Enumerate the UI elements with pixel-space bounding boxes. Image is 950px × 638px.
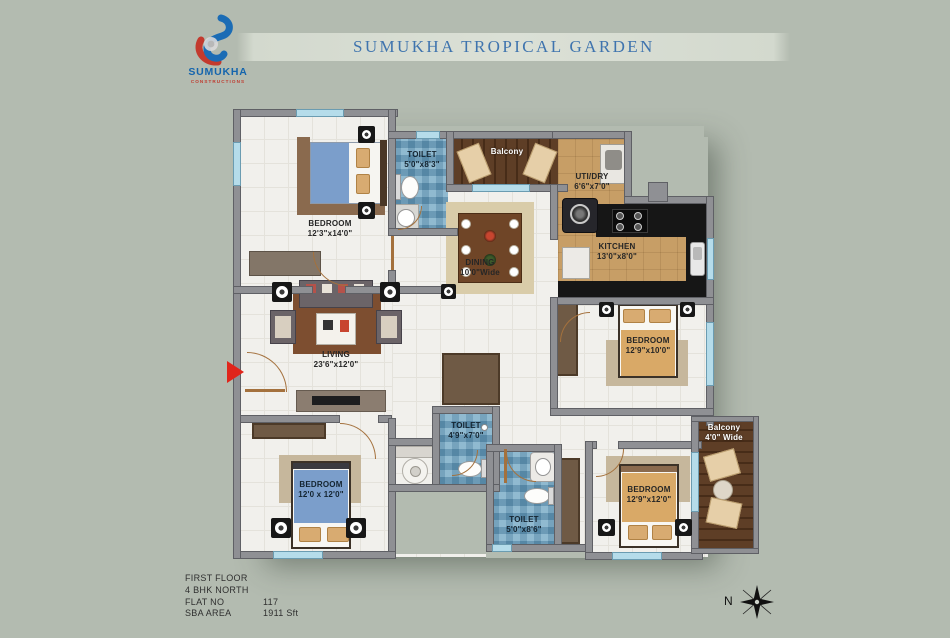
wall [550,297,558,415]
column [358,126,375,143]
column [441,284,456,299]
room-label-bedroom-top-left: BEDROOM12'3"x14'0" [284,219,376,240]
tv [312,396,360,405]
cabinet [442,353,500,405]
room-label-living: LIVING23'6"x12'0" [303,350,369,371]
pillow [299,527,321,542]
room-label-balcony-right: Balcony4'0" Wide [695,423,753,444]
pillow [623,309,645,323]
basin-drain [410,466,421,477]
column [272,282,292,302]
room-label-bedroom-bottom-left: BEDROOM12'0 x 12'0" [289,480,353,501]
wall [486,444,562,452]
burner [616,223,624,231]
pillow [356,174,370,194]
window [706,322,714,386]
info-row: FLAT NO117 [185,597,298,609]
duct [648,182,668,202]
column [358,202,375,219]
title-banner: SUMUKHA TROPICAL GARDEN [237,33,790,61]
pillow [628,525,648,540]
bed-headboard [380,140,387,206]
burner [616,212,624,220]
pillow [649,309,671,323]
window [416,131,440,139]
vanity-counter [392,446,436,458]
window [691,452,699,512]
wall [691,548,759,554]
sumukha-logo-icon [188,13,240,67]
washer-drum [570,204,590,224]
window [273,551,323,559]
column [680,302,695,317]
room-label-toilet-bottom: TOILET5'0"x8'6" [495,515,553,536]
room-label-dining: DINING10'0"Wide [447,258,513,279]
wall [753,416,759,554]
floor-plan-page: SUMUKHA TROPICAL GARDEN SUMUKHA CONSTRUC… [0,0,950,638]
wall [691,416,759,422]
wc [524,488,550,504]
coffee-table-decor [323,320,333,330]
logo-sub-text: CONSTRUCTIONS [180,79,256,84]
wall [618,441,702,449]
column [598,519,615,536]
wardrobe [560,458,580,544]
wall [432,406,440,488]
wall [550,408,714,416]
centerpiece [484,230,496,242]
entrance-arrow-icon [227,361,244,383]
sink-basin [605,150,622,170]
window [296,109,344,117]
plate [461,219,471,229]
wall [432,406,500,414]
page-title: SUMUKHA TROPICAL GARDEN [237,37,655,57]
wall [388,131,564,139]
wardrobe [249,251,321,276]
info-row: SBA AREA1911 Sft [185,608,298,620]
wall [585,441,593,559]
column [599,302,614,317]
room-label-toilet-middle: TOILET4'9"x7'0" [438,421,494,442]
wall [240,415,340,423]
room-label-utility: UTI/DRY6'6"x7'0" [560,172,624,193]
wall [552,131,632,139]
info-row: FIRST FLOOR [185,573,298,585]
room-label-bedroom-right: BEDROOM12'9"x10'0" [618,336,678,357]
exterior-patch [396,492,486,554]
wall [624,131,632,204]
plate [509,245,519,255]
wall [388,109,396,236]
exterior-patch [632,137,708,197]
window [233,142,241,186]
door-leaf [391,236,394,270]
coffee-table-decor [340,320,349,332]
column [380,282,400,302]
info-row: 4 BHK NORTH [185,585,298,597]
wall [550,184,558,240]
column [675,519,692,536]
compass-north-label: N [724,594,733,608]
column [271,518,291,538]
exterior-patch [486,552,586,558]
room-label-toilet-top: TOILET5'0"x8'3" [396,150,448,171]
wall [624,196,714,204]
plate [461,245,471,255]
sink-basin [693,247,702,260]
armchair-cushion [275,316,291,338]
balcony-table [713,480,733,500]
column [346,518,366,538]
window [707,238,714,280]
wall [388,484,500,492]
pillow [652,525,672,540]
bed-headboard [293,463,349,469]
wc [401,176,419,199]
window [612,552,662,560]
wardrobe [252,423,326,439]
wall [554,444,562,546]
plan-info-block: FIRST FLOOR 4 BHK NORTH FLAT NO117 SBA A… [185,573,298,620]
window [492,544,512,552]
sliding-door-window [472,184,530,192]
sofa-cushion [322,284,332,293]
burner [634,223,642,231]
room-label-balcony-top: Balcony [472,147,542,157]
plate [509,219,519,229]
coffee-table [316,313,356,345]
wall [486,444,494,552]
bed-headboard [621,466,677,472]
door-leaf [245,389,285,392]
pillow [356,148,370,168]
wall [706,196,714,426]
door-leaf [504,449,507,483]
burner [634,212,642,220]
bed [310,142,382,204]
room-label-bedroom-bottom-right: BEDROOM12'9"x12'0" [617,485,681,506]
logo-brand-text: SUMUKHA [180,66,256,78]
compass-rose-icon [737,585,777,619]
armchair-cushion [381,316,397,338]
washbasin [535,458,551,476]
room-label-kitchen: KITCHEN13'0"x8'0" [584,242,650,263]
